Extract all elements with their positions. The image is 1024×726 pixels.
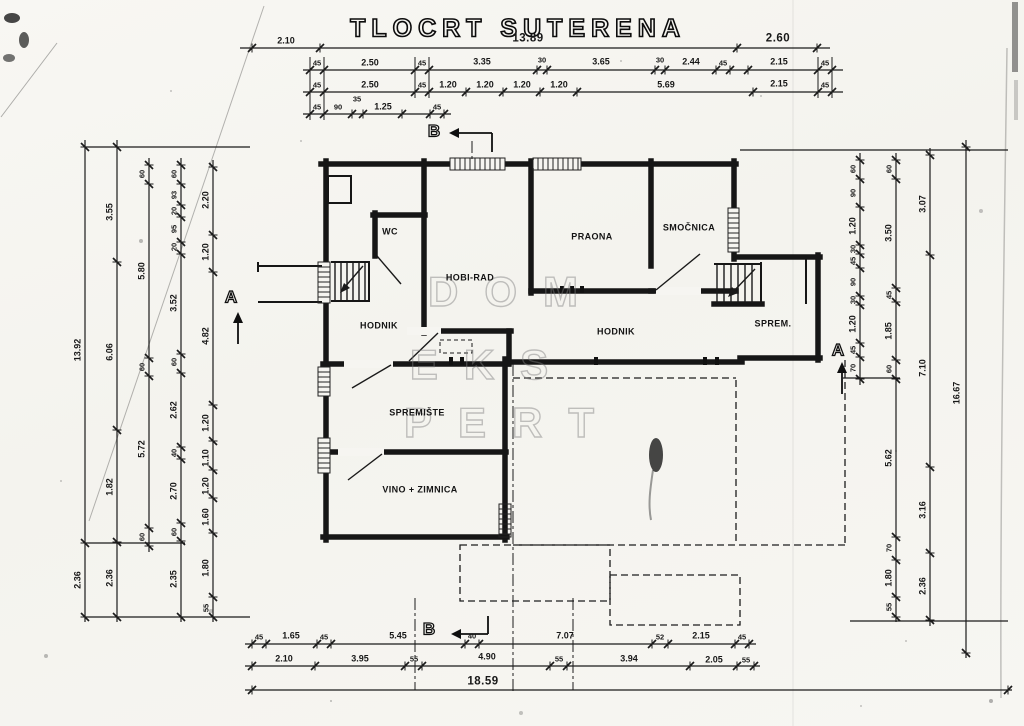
- floorplan-drawing: [0, 0, 1024, 726]
- section-dash-lines: [415, 141, 573, 692]
- porch: [258, 262, 323, 302]
- stairs: [335, 263, 755, 303]
- closet: [328, 176, 351, 203]
- door-swings: [348, 254, 700, 480]
- ink-stain: [649, 438, 663, 472]
- threshold-marks: [449, 286, 719, 365]
- dashed-outlines: [460, 360, 845, 625]
- drawing-title: TLOCRT SUTERENA: [350, 17, 686, 42]
- scanned-floorplan-page: DOMEKSPERT TLOCRT SUTERENA WCHOBI-RADPRA…: [0, 0, 1024, 726]
- dimension-lines: [81, 44, 1013, 695]
- walls: [321, 161, 820, 540]
